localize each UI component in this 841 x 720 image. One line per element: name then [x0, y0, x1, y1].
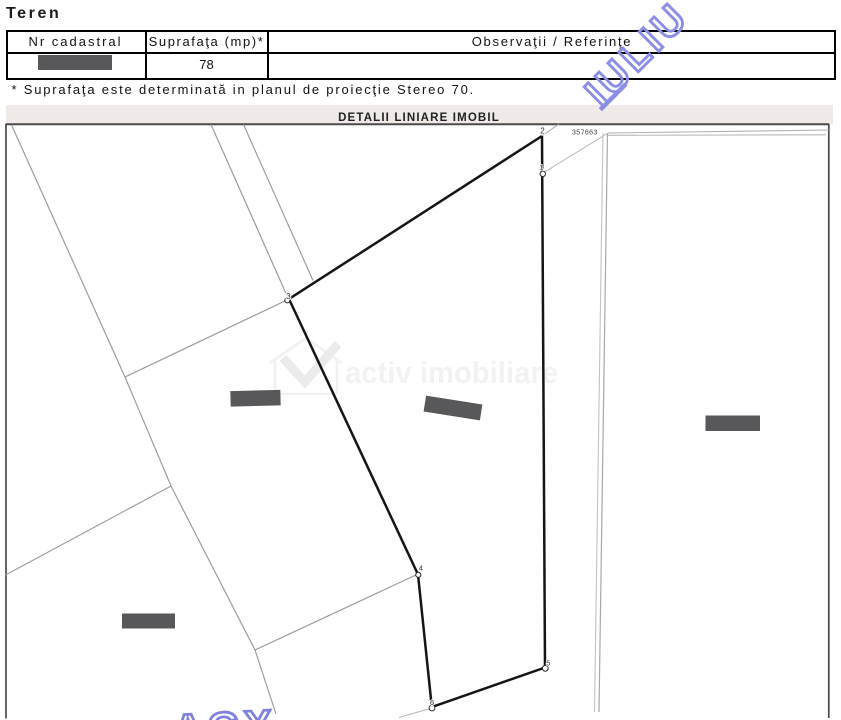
svg-text:3: 3: [286, 291, 291, 301]
svg-text:1: 1: [539, 163, 543, 172]
svg-text:IULIU: IULIU: [577, 0, 698, 115]
svg-text:5: 5: [546, 659, 550, 668]
svg-text:4: 4: [419, 564, 423, 573]
svg-text:AGX: AGX: [172, 701, 277, 720]
svg-text:357663: 357663: [572, 130, 598, 137]
svg-text:activ imobiliare: activ imobiliare: [345, 355, 558, 390]
svg-text:6: 6: [430, 698, 434, 707]
svg-text:2: 2: [540, 127, 545, 136]
